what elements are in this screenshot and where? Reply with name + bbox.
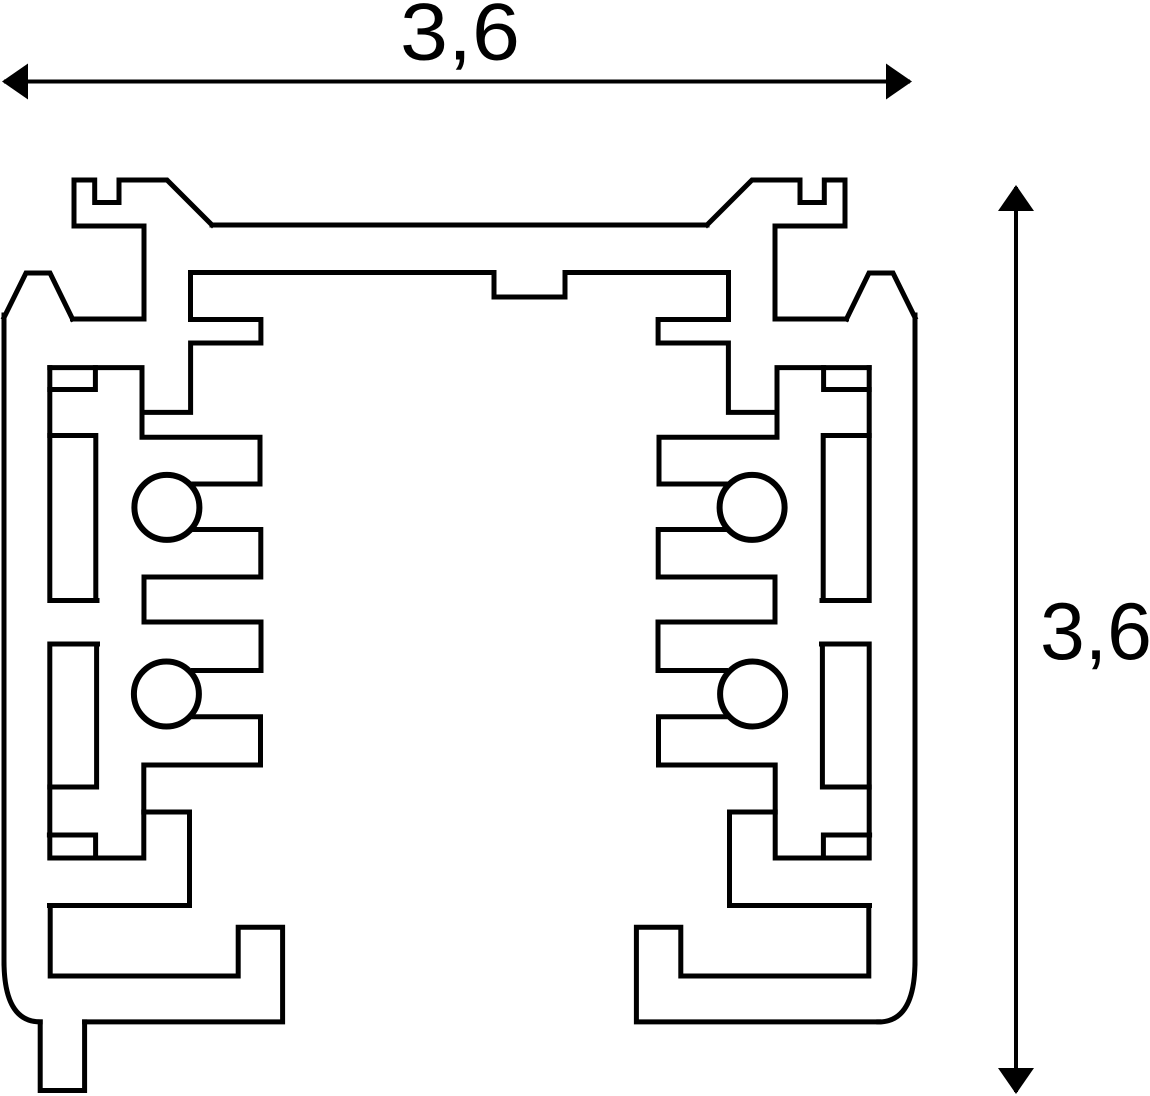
svg-text:3,6: 3,6 bbox=[1040, 587, 1150, 677]
svg-text:3,6: 3,6 bbox=[400, 0, 520, 78]
